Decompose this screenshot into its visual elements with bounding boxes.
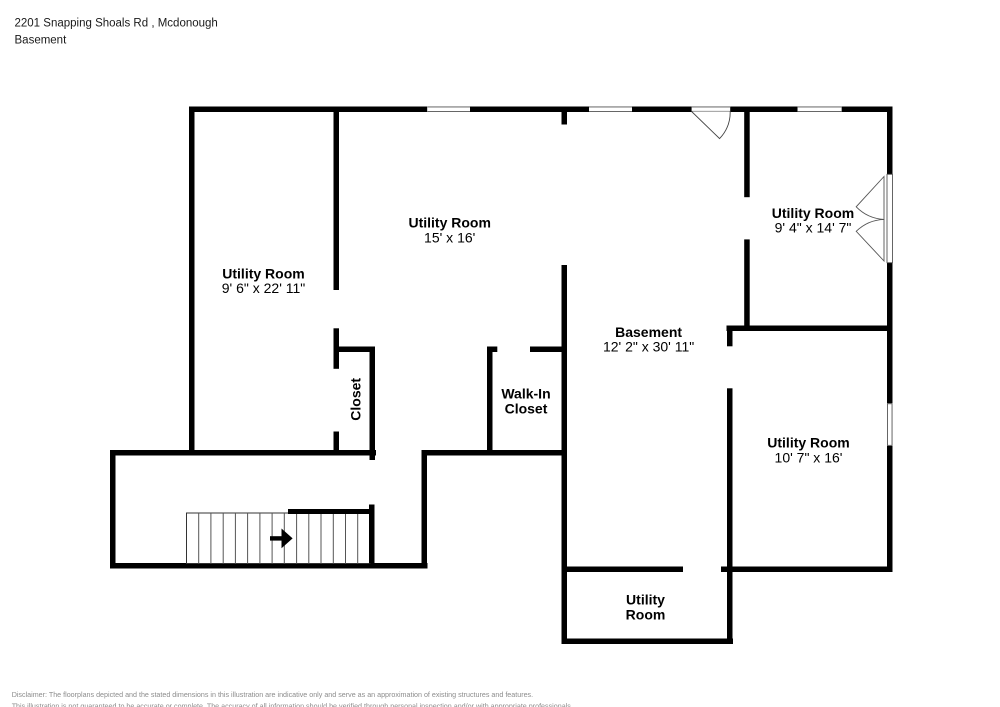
svg-text:15' x 16': 15' x 16'	[424, 230, 475, 246]
svg-text:Closet: Closet	[348, 378, 364, 421]
svg-text:This illustration is not guara: This illustration is not guaranteed to b…	[12, 702, 573, 707]
svg-text:Utility Room: Utility Room	[222, 265, 304, 281]
svg-text:Disclaimer: The floorplans dep: Disclaimer: The floorplans depicted and …	[12, 691, 533, 699]
svg-text:Basement: Basement	[15, 35, 68, 47]
svg-text:9' 6" x 22' 11": 9' 6" x 22' 11"	[222, 280, 306, 296]
svg-text:2201 Snapping Shoals Rd , Mcdo: 2201 Snapping Shoals Rd , Mcdonough	[15, 18, 218, 30]
svg-text:Utility Room: Utility Room	[408, 215, 490, 231]
svg-text:9' 4" x 14' 7": 9' 4" x 14' 7"	[775, 220, 852, 236]
svg-text:Utility: Utility	[626, 592, 665, 608]
svg-text:12' 2" x 30' 11": 12' 2" x 30' 11"	[603, 338, 694, 354]
svg-text:10' 7" x 16': 10' 7" x 16'	[775, 450, 843, 466]
svg-text:Utility Room: Utility Room	[767, 435, 849, 451]
svg-text:Room: Room	[626, 607, 666, 623]
svg-text:Utility Room: Utility Room	[772, 205, 854, 221]
svg-text:Walk-In: Walk-In	[501, 386, 550, 402]
svg-text:Closet: Closet	[505, 400, 548, 416]
